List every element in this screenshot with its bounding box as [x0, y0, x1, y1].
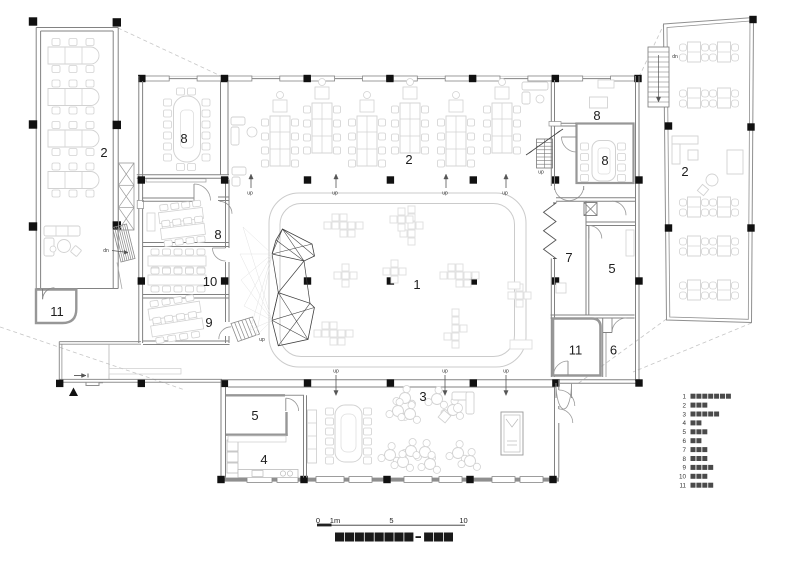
svg-text:8: 8	[601, 153, 608, 168]
svg-text:8: 8	[180, 131, 187, 146]
svg-text:dn: dn	[103, 248, 109, 254]
svg-text:up: up	[333, 369, 339, 375]
svg-text:9: 9	[205, 315, 212, 330]
svg-text:2: 2	[681, 164, 688, 179]
svg-text:4: 4	[260, 452, 267, 467]
svg-text:10: 10	[459, 516, 467, 525]
svg-text:dn: dn	[672, 54, 678, 60]
svg-text:1m: 1m	[330, 516, 340, 525]
svg-text:1: 1	[682, 394, 686, 401]
svg-text:2: 2	[682, 402, 686, 409]
svg-text:up: up	[442, 191, 448, 197]
svg-text:up: up	[247, 191, 253, 197]
svg-text:10: 10	[203, 274, 217, 289]
svg-text:9: 9	[682, 465, 686, 472]
svg-text:up: up	[259, 337, 265, 343]
svg-text:10: 10	[679, 474, 687, 481]
svg-text:0: 0	[316, 516, 320, 525]
svg-text:2: 2	[100, 145, 107, 160]
svg-text:8: 8	[214, 227, 221, 242]
svg-text:11: 11	[569, 343, 583, 358]
svg-text:11: 11	[679, 483, 686, 490]
svg-text:7: 7	[565, 250, 572, 265]
svg-text:3: 3	[419, 389, 426, 404]
svg-text:up: up	[332, 191, 338, 197]
svg-text:2: 2	[405, 152, 412, 167]
svg-text:8: 8	[593, 108, 600, 123]
svg-text:11: 11	[50, 304, 64, 319]
svg-text:5: 5	[251, 408, 258, 423]
svg-text:6: 6	[682, 438, 686, 445]
svg-text:5: 5	[389, 516, 393, 525]
svg-text:4: 4	[682, 420, 686, 427]
svg-text:up: up	[502, 191, 508, 197]
svg-text:8: 8	[682, 456, 686, 463]
svg-text:up: up	[442, 369, 448, 375]
svg-text:up: up	[538, 170, 544, 176]
svg-text:up: up	[503, 369, 509, 375]
svg-text:7: 7	[682, 447, 686, 454]
svg-text:6: 6	[610, 343, 617, 358]
svg-text:5: 5	[682, 429, 686, 436]
svg-text:3: 3	[682, 411, 686, 418]
svg-text:1: 1	[413, 277, 420, 292]
svg-text:5: 5	[608, 261, 615, 276]
